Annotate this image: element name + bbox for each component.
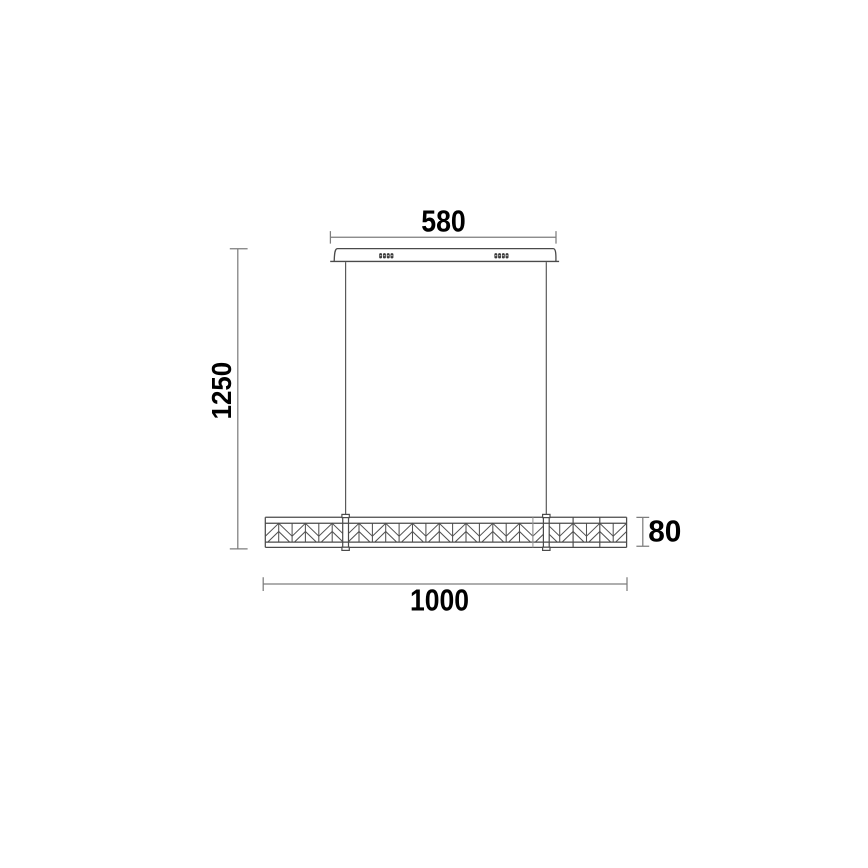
svg-text:1250: 1250 — [206, 362, 237, 420]
svg-text:80: 80 — [648, 514, 681, 548]
svg-text:1000: 1000 — [410, 584, 469, 618]
svg-text:580: 580 — [421, 205, 466, 239]
